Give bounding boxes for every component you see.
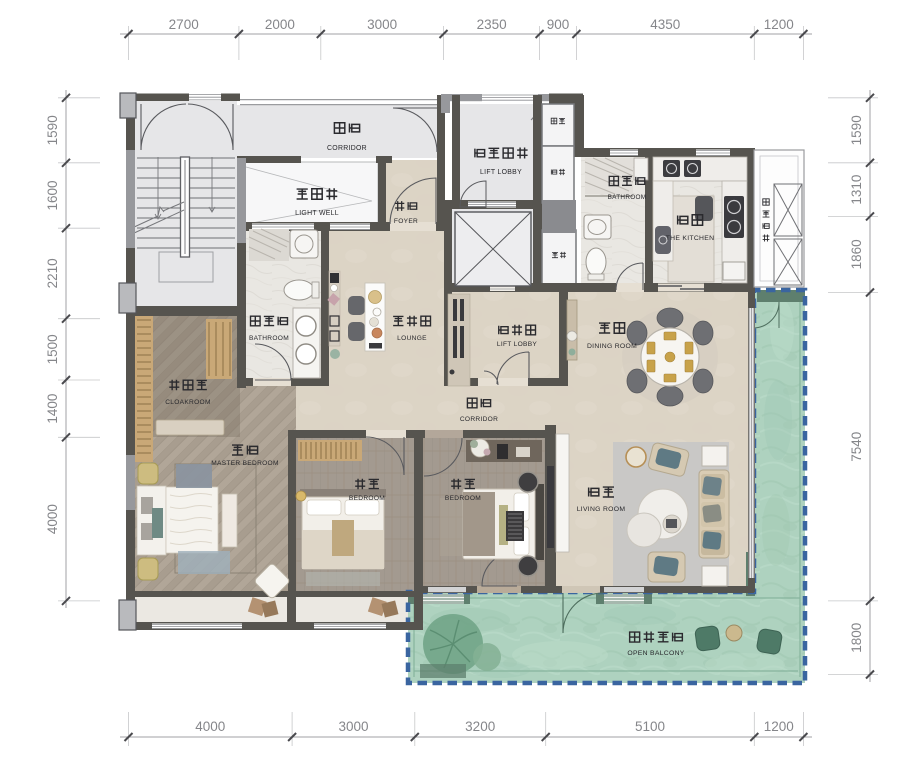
svg-text:1590: 1590 bbox=[849, 115, 864, 145]
svg-text:BEDROOM: BEDROOM bbox=[349, 495, 385, 502]
svg-text:MASTER BEDROOM: MASTER BEDROOM bbox=[211, 460, 279, 467]
svg-text:4000: 4000 bbox=[45, 504, 60, 534]
svg-text:1860: 1860 bbox=[849, 239, 864, 269]
svg-text:BATHROOM: BATHROOM bbox=[608, 194, 647, 201]
svg-text:1310: 1310 bbox=[849, 175, 864, 205]
svg-text:1590: 1590 bbox=[45, 115, 60, 145]
svg-text:5100: 5100 bbox=[635, 719, 665, 734]
svg-text:BATHROOM: BATHROOM bbox=[249, 335, 289, 342]
svg-text:7540: 7540 bbox=[849, 432, 864, 462]
svg-text:2210: 2210 bbox=[45, 258, 60, 288]
svg-text:2000: 2000 bbox=[265, 17, 295, 32]
svg-text:LIFT LOBBY: LIFT LOBBY bbox=[497, 341, 538, 348]
svg-text:2350: 2350 bbox=[477, 17, 507, 32]
svg-text:4350: 4350 bbox=[650, 17, 680, 32]
svg-text:1800: 1800 bbox=[849, 623, 864, 653]
svg-text:DINING ROOM: DINING ROOM bbox=[587, 343, 637, 350]
svg-text:CORRIDOR: CORRIDOR bbox=[327, 145, 367, 152]
svg-text:1400: 1400 bbox=[45, 394, 60, 424]
svg-text:1600: 1600 bbox=[45, 180, 60, 210]
svg-text:LIGHT WELL: LIGHT WELL bbox=[295, 210, 339, 217]
svg-text:3200: 3200 bbox=[465, 719, 495, 734]
svg-text:3000: 3000 bbox=[338, 719, 368, 734]
svg-text:LOUNGE: LOUNGE bbox=[397, 335, 427, 342]
svg-text:1200: 1200 bbox=[764, 17, 794, 32]
svg-text:2700: 2700 bbox=[169, 17, 199, 32]
svg-text:CORRIDOR: CORRIDOR bbox=[460, 416, 498, 423]
svg-text:LIVING ROOM: LIVING ROOM bbox=[577, 506, 626, 513]
svg-text:900: 900 bbox=[547, 17, 570, 32]
svg-text:FOYER: FOYER bbox=[394, 218, 418, 225]
svg-text:OPEN BALCONY: OPEN BALCONY bbox=[627, 650, 684, 657]
svg-text:THE KITCHEN: THE KITCHEN bbox=[666, 235, 715, 242]
svg-text:4000: 4000 bbox=[195, 719, 225, 734]
svg-text:CLOAKROOM: CLOAKROOM bbox=[165, 399, 211, 406]
svg-text:BEDROOM: BEDROOM bbox=[445, 495, 481, 502]
svg-text:1500: 1500 bbox=[45, 334, 60, 364]
svg-text:LIFT LOBBY: LIFT LOBBY bbox=[480, 169, 522, 176]
svg-text:3000: 3000 bbox=[367, 17, 397, 32]
svg-text:1200: 1200 bbox=[764, 719, 794, 734]
